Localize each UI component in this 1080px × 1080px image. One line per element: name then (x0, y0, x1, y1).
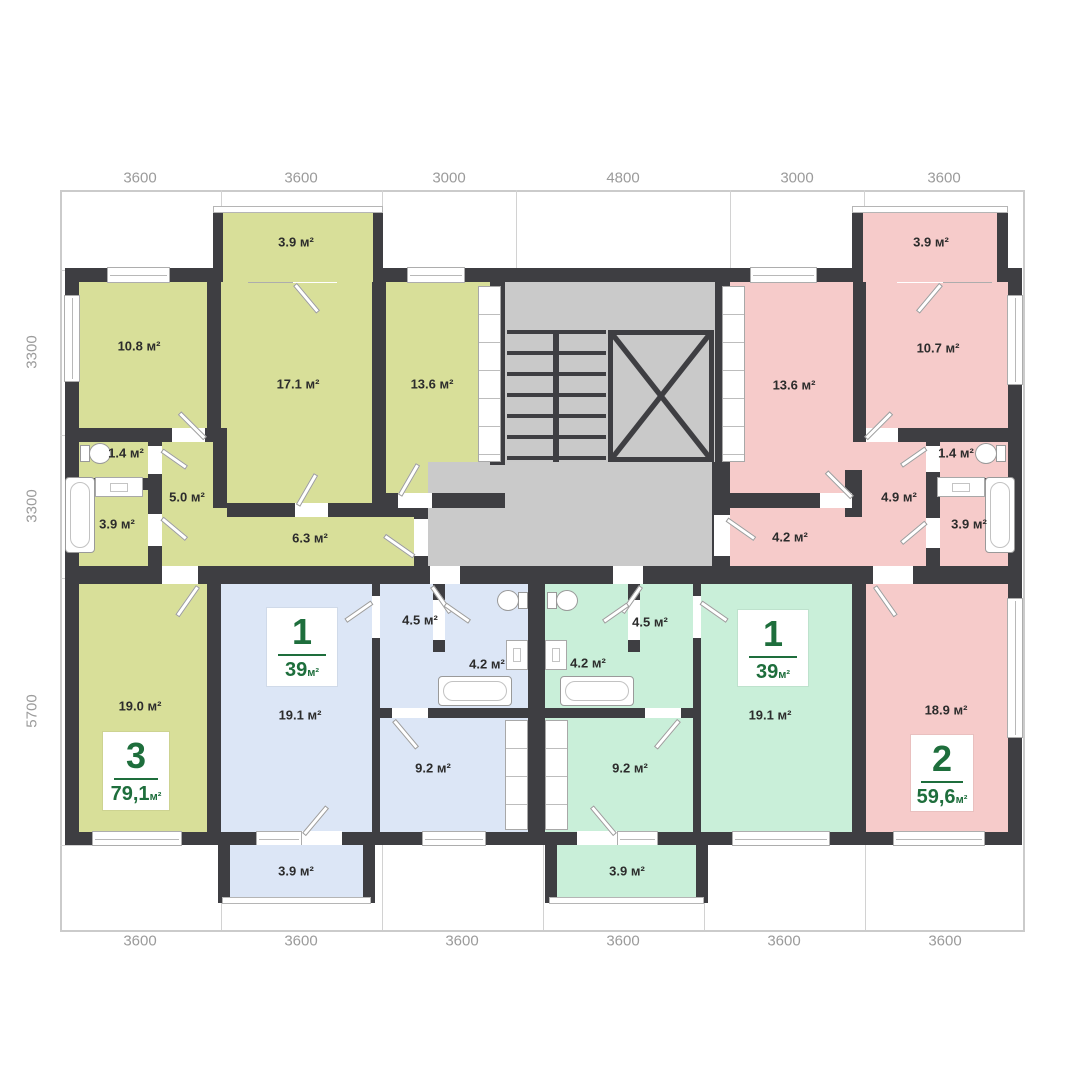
toilet (547, 590, 577, 609)
door-opening (926, 518, 940, 548)
wall (213, 428, 227, 508)
room-area-label: 9.2 м² (612, 761, 648, 776)
toilet-tank (996, 445, 1006, 462)
sink-counter (937, 477, 985, 497)
area-unit: м² (150, 791, 162, 803)
stair-divider (553, 330, 559, 462)
room-area-label: 19.1 м² (279, 708, 322, 723)
dimension-label: 3600 (123, 933, 156, 950)
room-area-label: 1.4 м² (108, 446, 144, 461)
room-area-label: 6.3 м² (292, 531, 328, 546)
bathtub (65, 477, 95, 553)
bathtub (985, 477, 1015, 553)
room-area-label: 9.2 м² (415, 761, 451, 776)
dimension-tick (543, 845, 544, 930)
kitchen-cabinets (722, 286, 745, 462)
area-unit: м² (307, 667, 319, 679)
dimension-tick (516, 190, 517, 268)
door-opening (392, 708, 428, 718)
room-area-label: 10.7 м² (917, 341, 960, 356)
bathtub (438, 676, 512, 706)
apartment-number: 1 (738, 616, 808, 652)
toilet-bowl (497, 590, 519, 611)
dimension-tick (865, 845, 866, 930)
window (422, 831, 486, 846)
badge-divider (921, 781, 963, 783)
room-area-label: 3.9 м² (913, 235, 949, 250)
room-area-label: 4.5 м² (402, 613, 438, 628)
dimension-label: 3600 (767, 933, 800, 950)
wall (372, 282, 386, 503)
room-area-label: 1.4 м² (938, 446, 974, 461)
sink-counter (506, 640, 528, 670)
apartment-area: 59,6м² (911, 786, 973, 811)
door-opening (148, 514, 162, 546)
room-area-label: 19.1 м² (749, 708, 792, 723)
apartment-area: 39м² (267, 659, 337, 684)
window (256, 831, 302, 846)
room-area-label: 3.9 м² (99, 517, 135, 532)
dimension-label: 3600 (445, 933, 478, 950)
window (750, 267, 817, 283)
balcony-glazing (222, 897, 371, 904)
room-area-label: 17.1 м² (277, 377, 320, 392)
area-value: 59,6 (917, 786, 956, 808)
window (1007, 598, 1023, 738)
door-opening (645, 708, 681, 718)
apartment-number: 3 (103, 738, 169, 774)
window (64, 295, 80, 382)
balcony-wall (696, 845, 708, 903)
balcony-wall (852, 209, 863, 282)
floor-plan: 3600 3600 3000 4800 3000 3600 3600 3600 … (0, 0, 1080, 1080)
dimension-label: 3600 (284, 170, 317, 187)
area-unit: м² (778, 669, 790, 681)
area-value: 39 (285, 659, 307, 681)
kitchen-cabinets (478, 286, 501, 462)
room-area-label: 4.9 м² (881, 490, 917, 505)
toilet-bowl (556, 590, 578, 611)
window (732, 831, 830, 846)
window (1007, 295, 1023, 385)
door-opening (414, 519, 428, 556)
room-area-label: 10.8 м² (118, 339, 161, 354)
toilet-bowl (975, 443, 997, 464)
dimension-label: 3600 (927, 170, 960, 187)
door-opening (148, 446, 162, 474)
area-unit: м² (956, 794, 968, 806)
area-value: 39 (756, 661, 778, 683)
room-area-label: 3.9 м² (951, 517, 987, 532)
balcony-glazing (213, 206, 383, 213)
dimension-label: 3600 (606, 933, 639, 950)
door-opening (372, 596, 380, 638)
room-area-label: 19.0 м² (119, 699, 162, 714)
apartment-number: 2 (911, 741, 973, 777)
area-value: 79,1 (111, 783, 150, 805)
balcony-wall (363, 845, 375, 903)
wall (853, 282, 866, 442)
balcony-wall (218, 845, 230, 903)
door-opening (873, 566, 913, 584)
door-opening (398, 493, 432, 508)
entry-hall (428, 462, 712, 566)
room-area-label: 4.2 м² (772, 530, 808, 545)
room-area-label: 4.5 м² (632, 615, 668, 630)
balcony-wall (213, 209, 223, 282)
room-area-label: 3.9 м² (278, 235, 314, 250)
toilet (80, 443, 110, 462)
badge-divider (749, 656, 797, 658)
window (107, 267, 170, 283)
dimension-tick (730, 190, 731, 268)
window (617, 831, 658, 846)
badge-divider (278, 654, 326, 656)
balcony-wall (997, 209, 1008, 282)
toilet (976, 443, 1006, 462)
door-opening (613, 566, 643, 584)
dimension-label: 5700 (24, 694, 41, 727)
door-opening (430, 566, 460, 584)
kitchen-cabinets (545, 720, 568, 830)
balcony-wall (545, 845, 557, 903)
sink-counter (95, 477, 143, 497)
sink-counter (545, 640, 567, 670)
toilet-tank (518, 592, 528, 609)
room-area-label: 5.0 м² (169, 490, 205, 505)
badge-divider (114, 778, 159, 780)
apartment-number: 1 (267, 614, 337, 650)
balcony-glazing (549, 897, 704, 904)
room-area-label: 3.9 м² (609, 864, 645, 879)
dimension-label: 4800 (606, 170, 639, 187)
window (893, 831, 985, 846)
balcony-wall (373, 209, 383, 282)
apartment-badge: 3 79,1м² (103, 732, 169, 810)
dimension-label: 3300 (24, 489, 41, 522)
dimension-tick (382, 845, 383, 930)
room-area-label: 3.9 м² (278, 864, 314, 879)
dimension-label: 3600 (284, 933, 317, 950)
apartment-badge: 1 39м² (738, 610, 808, 686)
window (407, 267, 465, 283)
room-area-label: 4.2 м² (469, 657, 505, 672)
apartment-area: 39м² (738, 661, 808, 686)
apartment-badge: 1 39м² (267, 608, 337, 686)
kitchen-cabinets (505, 720, 528, 830)
room-area-label: 4.2 м² (570, 656, 606, 671)
dimension-label: 3000 (780, 170, 813, 187)
apartment-badge: 2 59,6м² (911, 735, 973, 811)
room-area-label: 18.9 м² (925, 703, 968, 718)
toilet (498, 590, 528, 609)
room-area-label: 13.6 м² (411, 377, 454, 392)
balcony-glazing (852, 206, 1008, 213)
dimension-label: 3600 (123, 170, 156, 187)
elevator-cross-icon (613, 335, 709, 457)
dimension-label: 3300 (24, 335, 41, 368)
dimension-label: 3000 (432, 170, 465, 187)
window (92, 831, 182, 846)
wall (207, 282, 221, 442)
dimension-label: 3600 (928, 933, 961, 950)
door-opening (162, 566, 198, 584)
elevator (608, 330, 714, 462)
bathtub (560, 676, 634, 706)
room-area-label: 13.6 м² (773, 378, 816, 393)
apartment-area: 79,1м² (103, 783, 169, 808)
